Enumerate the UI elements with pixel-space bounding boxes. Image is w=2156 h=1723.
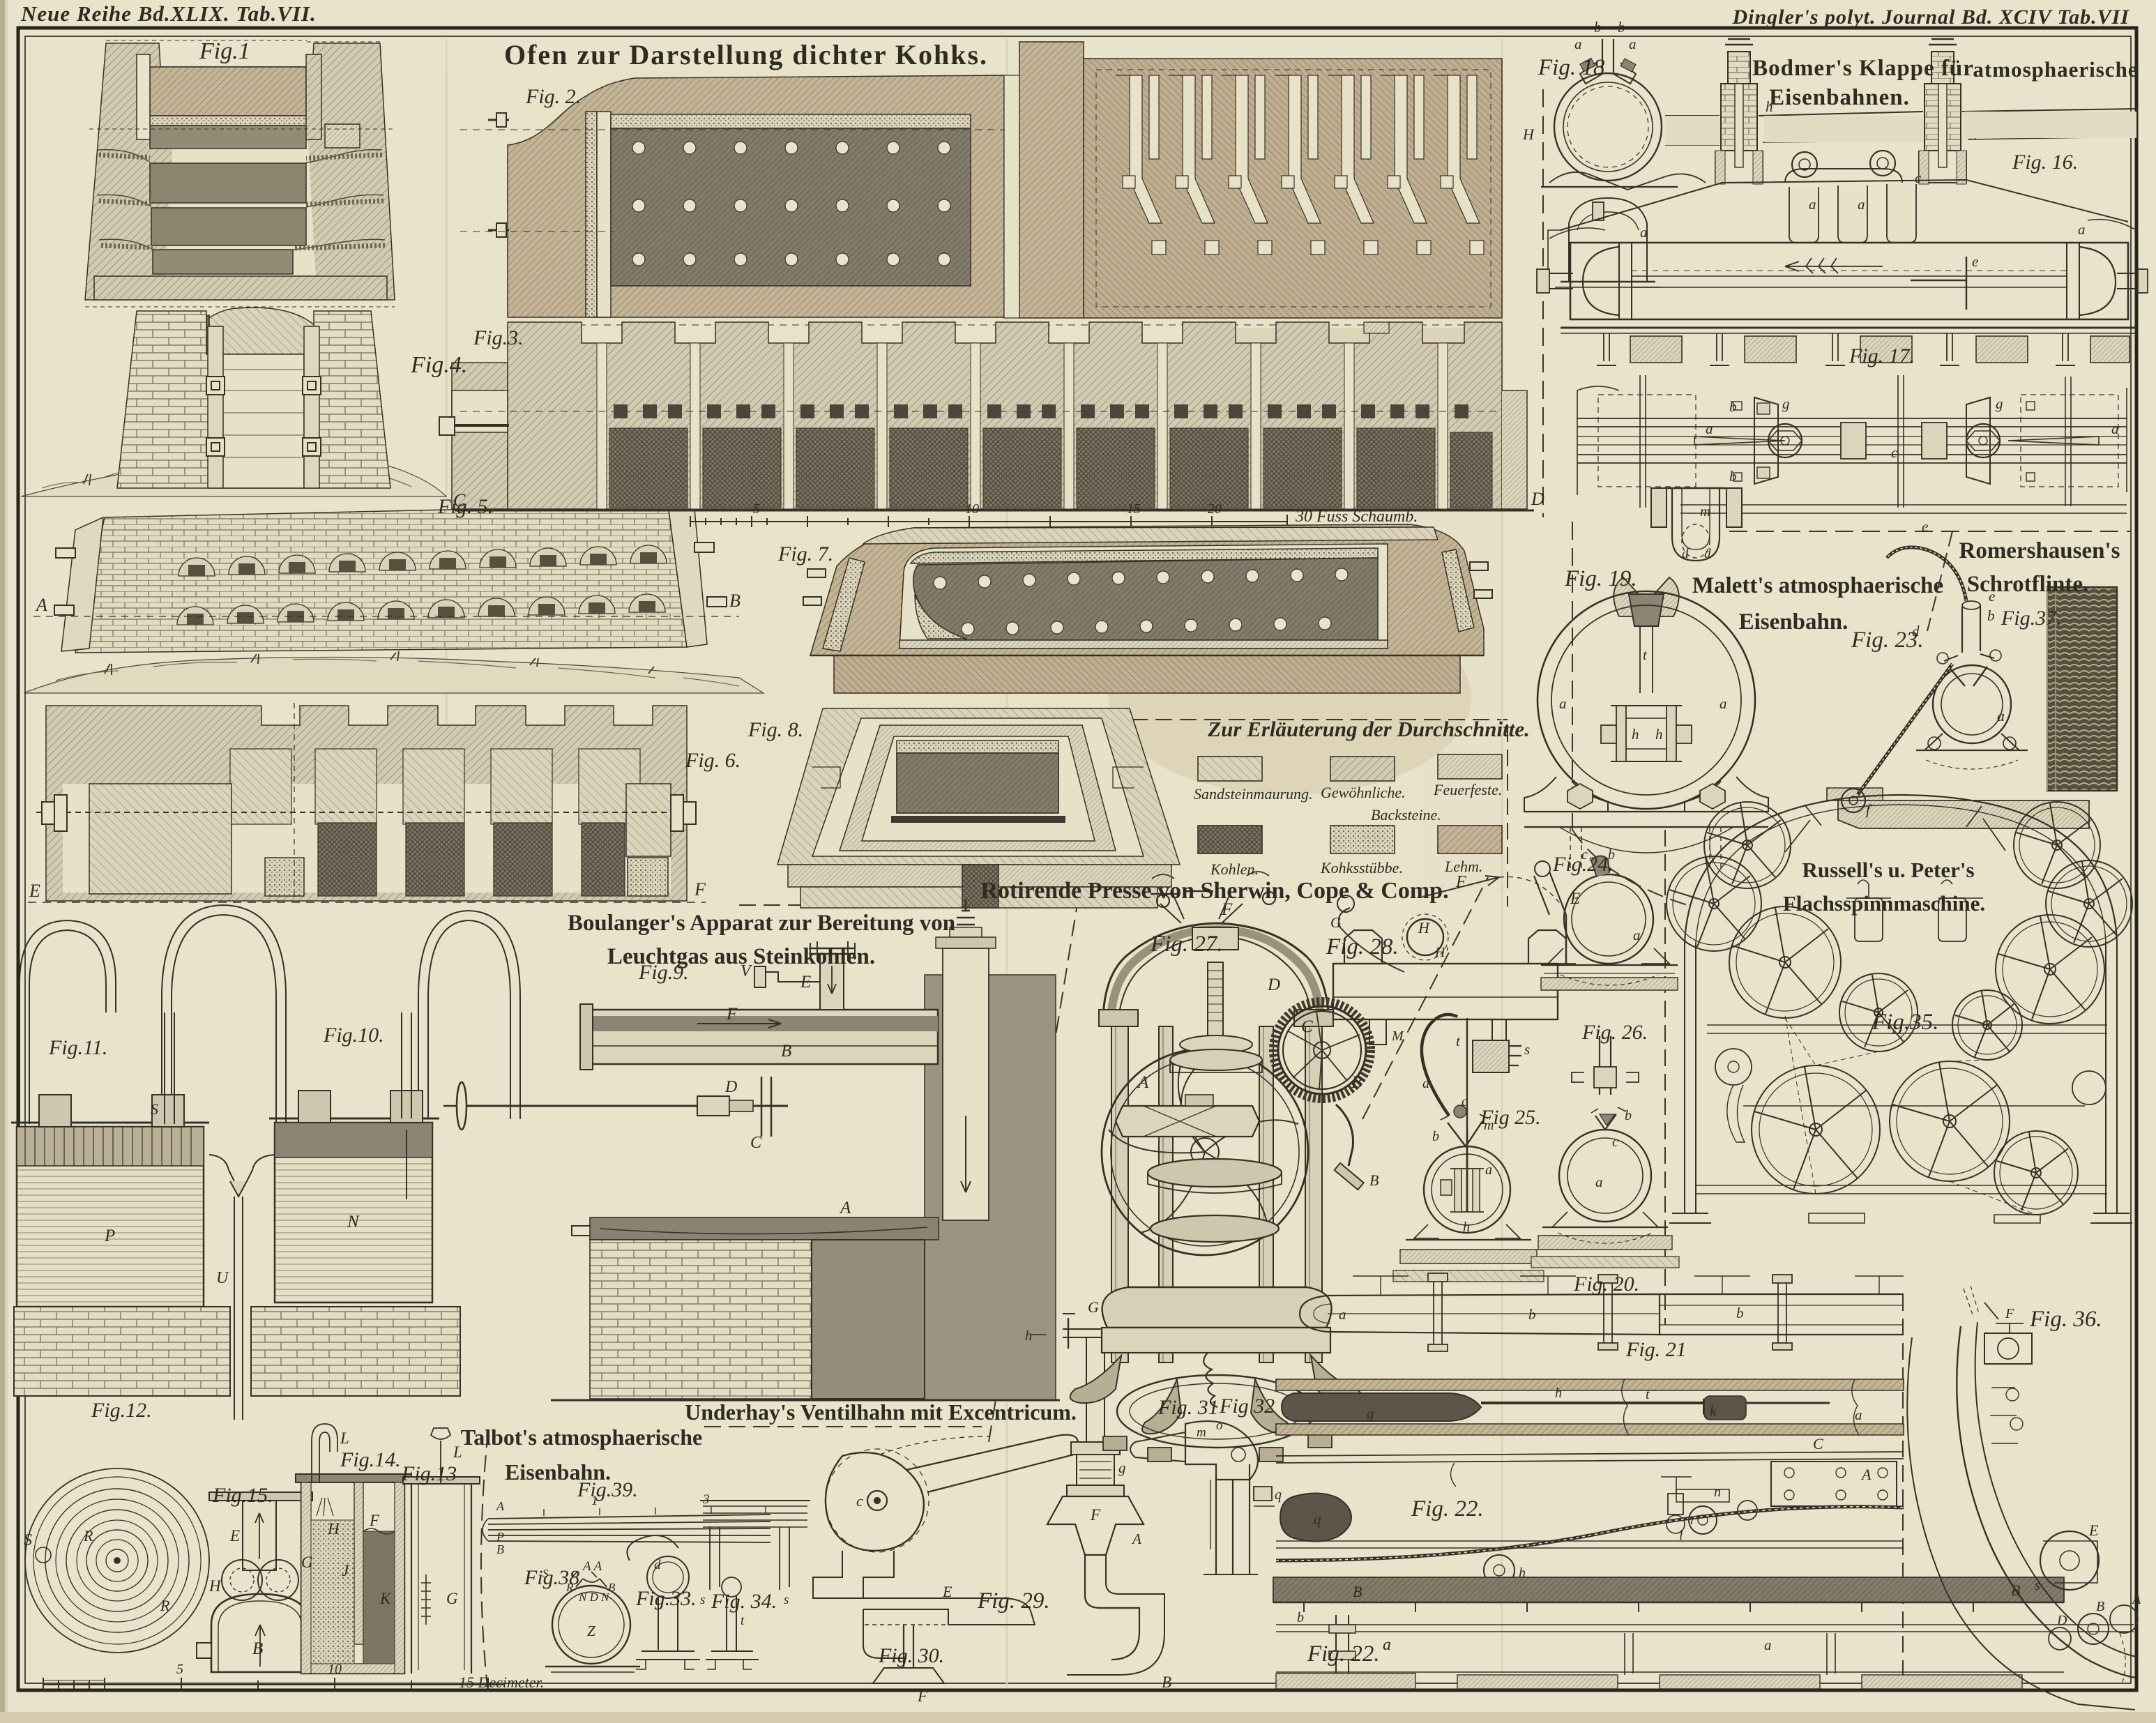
- svg-text:E: E: [229, 1527, 240, 1544]
- svg-text:20: 20: [1208, 501, 1222, 517]
- svg-text:c: c: [1891, 444, 1898, 461]
- svg-text:S: S: [151, 1100, 158, 1118]
- svg-text:F: F: [917, 1687, 928, 1705]
- svg-text:Rotirende Presse von Sherwin,: Rotirende Presse von Sherwin, Cope & Com…: [980, 878, 1448, 904]
- svg-text:Eisenbahnen.: Eisenbahnen.: [1769, 85, 1910, 110]
- svg-text:Fig. 31: Fig. 31: [1157, 1396, 1219, 1419]
- svg-text:b: b: [1618, 19, 1625, 36]
- svg-text:Fig. 5.: Fig. 5.: [437, 495, 493, 518]
- svg-text:t: t: [1646, 1387, 1650, 1402]
- svg-text:B: B: [2096, 1599, 2104, 1614]
- svg-text:Fig. 23.: Fig. 23.: [1851, 628, 1924, 653]
- svg-text:Fig. 22.: Fig. 22.: [1411, 1496, 1484, 1521]
- svg-text:g: g: [1782, 395, 1790, 412]
- svg-text:5: 5: [176, 1662, 183, 1677]
- svg-text:A: A: [496, 1499, 505, 1513]
- svg-text:Fig 32: Fig 32: [1219, 1395, 1275, 1418]
- svg-text:Fig. 26.: Fig. 26.: [1581, 1021, 1648, 1044]
- svg-text:a: a: [1574, 36, 1582, 52]
- svg-text:30 Fuss Schaumb.: 30 Fuss Schaumb.: [1295, 508, 1418, 526]
- svg-text:s: s: [1524, 1041, 1530, 1058]
- svg-text:Feuerfeste.: Feuerfeste.: [1433, 781, 1502, 798]
- svg-text:D: D: [1267, 976, 1280, 994]
- svg-text:Fig. 20.: Fig. 20.: [1573, 1273, 1639, 1296]
- svg-text:m: m: [1197, 1425, 1206, 1440]
- svg-text:a: a: [1706, 420, 1713, 437]
- svg-text:15: 15: [1127, 501, 1141, 517]
- svg-text:B: B: [252, 1639, 263, 1658]
- svg-text:Fig.24.: Fig.24.: [1552, 853, 1614, 876]
- svg-text:Fig. 17.: Fig. 17.: [1848, 344, 1915, 367]
- svg-text:Backsteine.: Backsteine.: [1371, 806, 1441, 823]
- svg-text:P: P: [496, 1530, 504, 1544]
- svg-text:Fig.10.: Fig.10.: [323, 1024, 384, 1047]
- svg-text:a: a: [2111, 420, 2119, 437]
- svg-text:g: g: [1996, 395, 2003, 412]
- svg-text:s: s: [2035, 1578, 2040, 1593]
- svg-text:A: A: [839, 1199, 851, 1217]
- svg-text:E: E: [2088, 1521, 2099, 1539]
- svg-text:Underhay's Ventilhahn mit Exce: Underhay's Ventilhahn mit Excentricum.: [685, 1399, 1077, 1425]
- svg-text:A A: A A: [582, 1559, 602, 1574]
- svg-text:a: a: [1720, 695, 1727, 712]
- svg-text:B: B: [1162, 1673, 1171, 1691]
- svg-text:a: a: [1485, 1162, 1492, 1178]
- svg-text:A: A: [35, 595, 47, 615]
- svg-text:B: B: [496, 1542, 504, 1556]
- svg-text:G: G: [446, 1590, 458, 1607]
- svg-text:C: C: [750, 1134, 762, 1152]
- svg-text:Bodmer's Klappe für: Bodmer's Klappe für: [1752, 56, 1974, 81]
- svg-text:K: K: [379, 1590, 392, 1607]
- svg-text:Fig 25.: Fig 25.: [1480, 1106, 1541, 1129]
- svg-text:g: g: [1118, 1459, 1126, 1476]
- svg-text:a: a: [1629, 36, 1637, 52]
- svg-text:h: h: [1025, 1328, 1032, 1344]
- svg-text:H: H: [208, 1577, 222, 1595]
- svg-text:F: F: [694, 879, 706, 900]
- svg-text:Malett's atmosphaerische: Malett's atmosphaerische: [1692, 573, 1943, 598]
- svg-text:Fig.37.: Fig.37.: [2001, 607, 2062, 630]
- svg-text:B: B: [1351, 1073, 1362, 1092]
- svg-text:b: b: [1987, 607, 1995, 624]
- svg-text:Boulanger's Apparat zur Bereit: Boulanger's Apparat zur Bereitung von: [568, 911, 955, 936]
- svg-text:r: r: [1690, 1512, 1696, 1528]
- svg-text:5: 5: [753, 501, 760, 517]
- svg-text:d: d: [1704, 547, 1711, 561]
- svg-text:Fig.9.: Fig.9.: [638, 961, 689, 984]
- svg-text:a: a: [1595, 1174, 1603, 1190]
- svg-text:d: d: [1682, 547, 1689, 561]
- svg-text:F: F: [726, 1005, 738, 1024]
- svg-text:l: l: [1679, 1528, 1683, 1543]
- svg-text:o: o: [1216, 1418, 1223, 1433]
- svg-text:E: E: [29, 881, 40, 901]
- svg-text:s: s: [784, 1593, 789, 1607]
- svg-text:Fig.13: Fig.13: [401, 1462, 457, 1485]
- svg-text:B: B: [781, 1042, 791, 1061]
- svg-text:c: c: [1915, 169, 1922, 186]
- svg-text:b: b: [1736, 1305, 1744, 1321]
- svg-text:Fig. 16.: Fig. 16.: [2012, 151, 2078, 174]
- svg-text:Talbot's atmosphaerische: Talbot's atmosphaerische: [461, 1425, 702, 1450]
- svg-text:h: h: [1632, 726, 1639, 743]
- svg-text:F: F: [1090, 1506, 1101, 1524]
- svg-text:a: a: [1858, 196, 1865, 213]
- svg-text:b: b: [1729, 398, 1737, 415]
- svg-text:a: a: [1855, 1406, 1862, 1423]
- svg-text:s: s: [700, 1593, 705, 1607]
- svg-text:N: N: [347, 1213, 360, 1231]
- svg-text:D: D: [2056, 1613, 2067, 1628]
- svg-text:B: B: [1369, 1171, 1379, 1189]
- svg-text:q: q: [1275, 1487, 1282, 1503]
- svg-text:Fig.11.: Fig.11.: [48, 1036, 107, 1059]
- svg-text:b: b: [1297, 1610, 1304, 1625]
- svg-text:Fig. 22.: Fig. 22.: [1307, 1641, 1380, 1667]
- svg-text:F: F: [1455, 873, 1466, 891]
- svg-text:b: b: [1729, 468, 1737, 485]
- svg-text:J: J: [342, 1562, 350, 1579]
- svg-text:G: G: [1088, 1298, 1099, 1316]
- svg-text:m: m: [1700, 503, 1710, 519]
- svg-text:Fig. 34.: Fig. 34.: [711, 1590, 777, 1613]
- svg-text:Fig. 27.: Fig. 27.: [1150, 932, 1223, 957]
- svg-text:h: h: [1555, 1386, 1562, 1401]
- svg-text:S: S: [24, 1531, 32, 1549]
- svg-text:Sandsteinmaurung.: Sandsteinmaurung.: [1194, 785, 1313, 803]
- svg-text:Fig. 29.: Fig. 29.: [977, 1588, 1050, 1614]
- svg-text:R: R: [160, 1597, 170, 1614]
- svg-text:U: U: [216, 1269, 229, 1287]
- svg-text:10: 10: [965, 501, 979, 517]
- svg-text:3: 3: [702, 1492, 710, 1507]
- svg-text:P: P: [104, 1227, 115, 1245]
- svg-text:B: B: [729, 591, 741, 611]
- svg-text:atmosphaerische: atmosphaerische: [1973, 57, 2138, 82]
- svg-text:b: b: [1528, 1306, 1536, 1323]
- svg-text:H: H: [1522, 126, 1535, 143]
- svg-text:n: n: [1714, 1485, 1721, 1500]
- svg-text:d: d: [654, 1558, 661, 1572]
- svg-text:a: a: [1339, 1306, 1346, 1323]
- svg-text:Fig.38: Fig.38: [524, 1566, 579, 1589]
- svg-text:Fig.15.: Fig.15.: [212, 1484, 273, 1507]
- svg-text:R: R: [83, 1527, 93, 1544]
- svg-text:10: 10: [328, 1662, 342, 1677]
- svg-text:Fig. 21: Fig. 21: [1625, 1338, 1687, 1361]
- svg-text:Zur Erläuterung der Durchschni: Zur Erläuterung der Durchschnitte.: [1207, 717, 1530, 741]
- svg-text:Fig. 36.: Fig. 36.: [2029, 1307, 2102, 1332]
- svg-text:C: C: [1813, 1435, 1823, 1452]
- svg-text:g: g: [1367, 1405, 1374, 1422]
- svg-text:F: F: [369, 1512, 380, 1529]
- svg-text:d: d: [1422, 1076, 1430, 1091]
- svg-text:Russell's u. Peter's: Russell's u. Peter's: [1802, 858, 1974, 882]
- svg-text:e: e: [1922, 518, 1928, 535]
- svg-text:b: b: [1625, 1108, 1632, 1123]
- svg-text:t: t: [741, 1614, 745, 1628]
- svg-text:Fig. 2.: Fig. 2.: [525, 85, 581, 108]
- svg-text:a: a: [1559, 695, 1567, 712]
- svg-text:h: h: [1463, 1220, 1470, 1235]
- svg-text:Neue Reihe Bd.XLIX. Tab.VII.: Neue Reihe Bd.XLIX. Tab.VII.: [20, 1, 317, 26]
- svg-text:H: H: [1418, 919, 1430, 936]
- svg-text:a: a: [1809, 196, 1816, 213]
- svg-text:D: D: [724, 1078, 737, 1096]
- svg-text:Flachsspinnmaschine.: Flachsspinnmaschine.: [1783, 891, 1985, 916]
- svg-text:Fig.39.: Fig.39.: [577, 1478, 638, 1501]
- svg-text:a: a: [1383, 1636, 1391, 1654]
- svg-text:h: h: [1655, 726, 1663, 743]
- svg-text:B: B: [608, 1581, 616, 1594]
- svg-text:Fig.33.: Fig.33.: [635, 1587, 697, 1610]
- svg-text:Fig.35.: Fig.35.: [1872, 1010, 1938, 1035]
- svg-text:Fig. 19.: Fig. 19.: [1564, 566, 1637, 591]
- svg-text:D: D: [1531, 489, 1544, 509]
- svg-text:Fig. 28.: Fig. 28.: [1326, 934, 1399, 959]
- svg-text:Fig. 8.: Fig. 8.: [747, 718, 803, 741]
- svg-text:a: a: [2078, 221, 2086, 238]
- svg-text:15 Decimeter.: 15 Decimeter.: [459, 1673, 544, 1691]
- svg-text:B: B: [1353, 1583, 1362, 1600]
- svg-text:e: e: [1972, 253, 1978, 270]
- svg-text:a: a: [1997, 707, 2005, 724]
- svg-text:L: L: [340, 1429, 349, 1447]
- svg-text:A: A: [1131, 1531, 1141, 1547]
- svg-text:H': H': [1434, 945, 1448, 960]
- svg-text:a: a: [1633, 927, 1641, 943]
- svg-text:Fig.14.: Fig.14.: [340, 1448, 401, 1471]
- svg-text:Z: Z: [587, 1623, 595, 1639]
- svg-text:Schrotflinte.: Schrotflinte.: [1967, 572, 2088, 597]
- svg-text:Ofen zur Darstellung dichter K: Ofen zur Darstellung dichter Kohks.: [504, 39, 988, 70]
- svg-text:Fig. 30.: Fig. 30.: [878, 1644, 944, 1667]
- svg-text:A: A: [1860, 1466, 1872, 1483]
- svg-text:C: C: [1301, 1017, 1313, 1036]
- svg-text:a: a: [1640, 224, 1648, 241]
- svg-text:Romershausen's: Romershausen's: [1959, 538, 2120, 563]
- svg-text:Fig. 7.: Fig. 7.: [777, 542, 833, 566]
- svg-text:G: G: [1330, 914, 1341, 931]
- svg-text:c: c: [856, 1492, 863, 1510]
- svg-text:Fig. 6.: Fig. 6.: [685, 749, 741, 772]
- svg-text:F: F: [2005, 1306, 2014, 1321]
- svg-text:q: q: [1314, 1511, 1321, 1528]
- svg-text:G: G: [301, 1554, 313, 1571]
- svg-text:Fig. 18: Fig. 18: [1538, 55, 1605, 80]
- svg-text:k: k: [1710, 1402, 1717, 1419]
- svg-text:Fig.1: Fig.1: [199, 38, 250, 64]
- svg-text:N D N: N D N: [578, 1591, 610, 1604]
- svg-text:Gewöhnliche.: Gewöhnliche.: [1321, 784, 1406, 801]
- svg-text:Kohlen.: Kohlen.: [1210, 860, 1259, 878]
- svg-text:Dingler's polyt. Journal Bd. X: Dingler's polyt. Journal Bd. XCIV Tab.VI…: [1732, 6, 2130, 29]
- svg-text:a: a: [1764, 1637, 1772, 1653]
- svg-text:H: H: [327, 1520, 340, 1538]
- svg-text:Fig.12.: Fig.12.: [91, 1399, 152, 1422]
- svg-text:b: b: [1594, 19, 1602, 36]
- svg-text:Fig.4.: Fig.4.: [410, 352, 467, 378]
- svg-text:Eisenbahn.: Eisenbahn.: [1739, 609, 1848, 635]
- svg-text:A: A: [2131, 1592, 2141, 1607]
- svg-text:c: c: [1612, 1134, 1618, 1150]
- svg-text:M: M: [1391, 1029, 1404, 1044]
- svg-text:Kohksstübbe.: Kohksstübbe.: [1320, 859, 1403, 876]
- svg-text:E: E: [942, 1583, 952, 1600]
- svg-text:b: b: [1432, 1129, 1439, 1144]
- svg-text:A: A: [1137, 1073, 1149, 1092]
- svg-text:Fig.3.: Fig.3.: [473, 326, 524, 349]
